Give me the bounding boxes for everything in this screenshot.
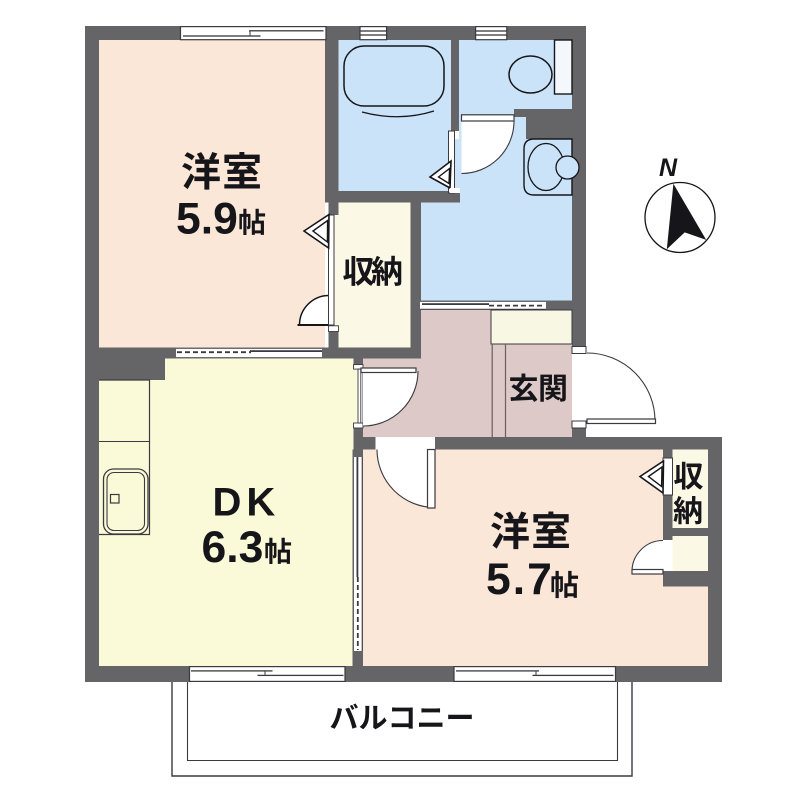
svg-text:6.3: 6.3 [202,523,264,572]
svg-text:N: N [659,154,678,182]
svg-text:DK: DK [213,480,281,524]
svg-text:5.7: 5.7 [486,555,554,604]
svg-text:5.9: 5.9 [176,195,238,244]
